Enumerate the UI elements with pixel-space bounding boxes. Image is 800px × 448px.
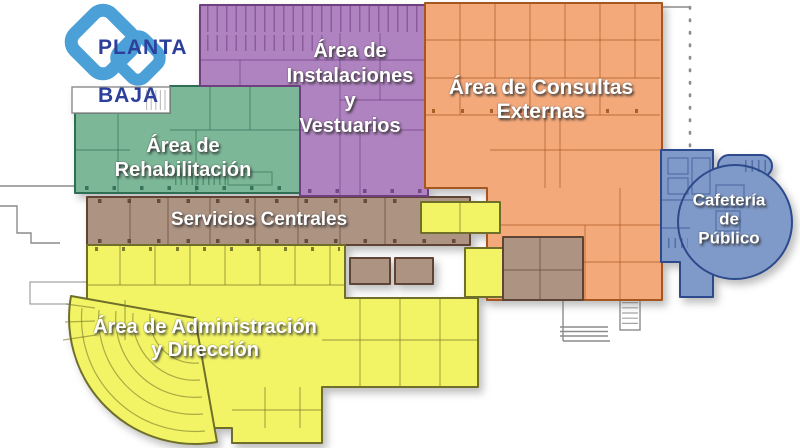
title-line: PLANTA	[98, 36, 188, 60]
title-line: BAJA	[98, 84, 188, 108]
region-cafeteria-publico	[661, 150, 792, 297]
region-servicios-block-b	[503, 237, 583, 300]
cafeteria-rotunda	[678, 165, 792, 279]
region-administracion-patch-b	[465, 248, 505, 297]
stairwell-outline	[620, 300, 640, 330]
portico	[350, 258, 390, 284]
auditorium-fan	[69, 296, 217, 444]
portico	[395, 258, 433, 284]
floor-plan-planta-baja: PLANTA BAJA Área de Rehabilitación Área …	[0, 0, 800, 448]
region-administracion-patch-a	[421, 202, 500, 233]
page-title: PLANTA BAJA	[98, 12, 188, 132]
